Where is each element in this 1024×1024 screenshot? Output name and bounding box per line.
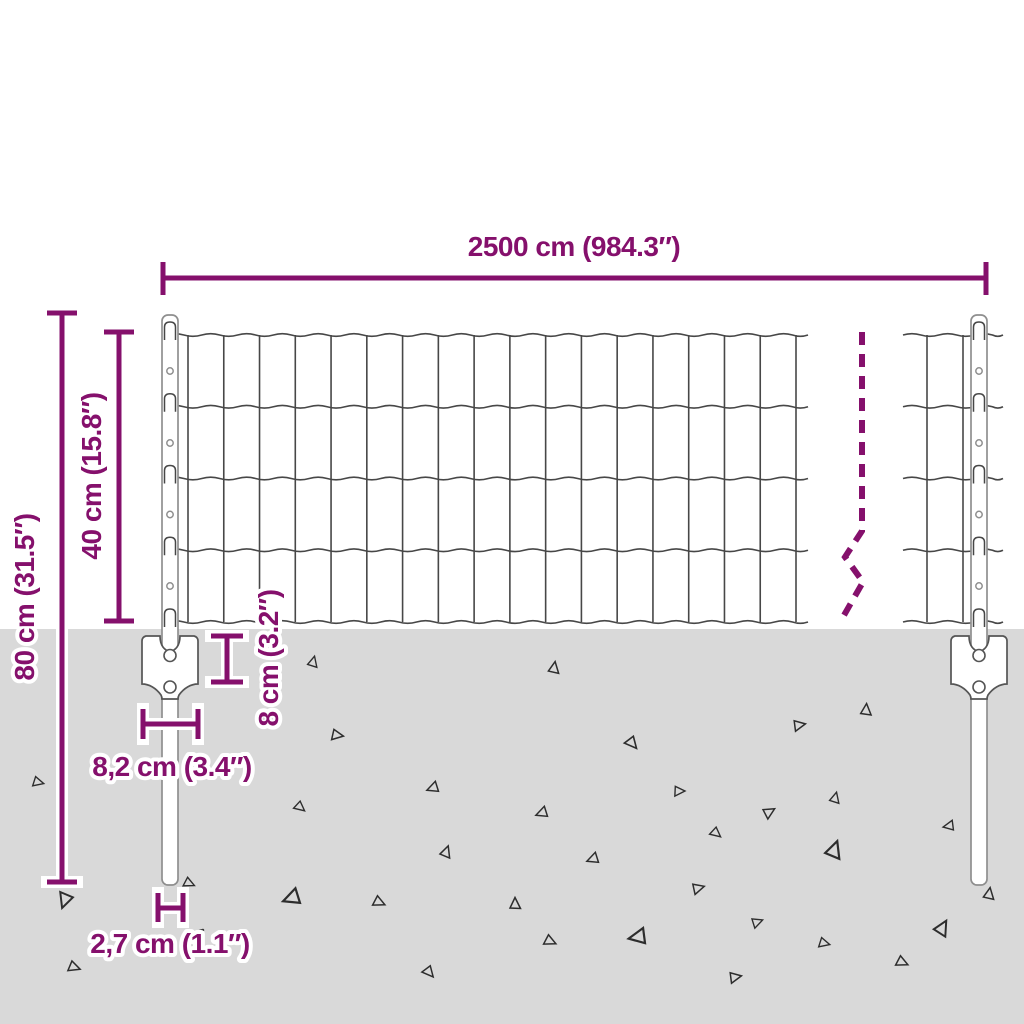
- wire-hook: [165, 537, 176, 555]
- wire-hook: [974, 609, 985, 627]
- post-hole: [167, 511, 173, 517]
- post-hole: [167, 440, 173, 446]
- dimension-total-width: 2500 cm (984.3″): [163, 231, 986, 295]
- anchor-plate-hole: [164, 681, 176, 693]
- dimension-label-mesh-height: 40 cm (15.8″): [76, 392, 107, 559]
- fence-mesh: [166, 334, 1003, 624]
- dimension-label-post-diameter: 2,7 cm (1.1″): [90, 928, 249, 959]
- horizontal-wire: [166, 477, 808, 480]
- horizontal-wire: [166, 405, 808, 408]
- post-hole: [976, 440, 982, 446]
- horizontal-wire: [903, 549, 1003, 552]
- break-line: [843, 332, 863, 617]
- wire-hook: [974, 537, 985, 555]
- horizontal-wire: [903, 621, 1003, 624]
- wire-hook: [974, 466, 985, 484]
- anchor-plate-hole: [973, 681, 985, 693]
- dimension-mesh-height: 40 cm (15.8″): [76, 332, 134, 621]
- anchor-plate-hole: [973, 650, 985, 662]
- post-hole: [976, 583, 982, 589]
- post-hole: [167, 583, 173, 589]
- fence-dimension-diagram: 2500 cm (984.3″) 80 cm (31.5″) 40 cm (15…: [0, 0, 1024, 1024]
- horizontal-wire: [166, 334, 808, 337]
- dimension-line-mesh-height: [104, 332, 134, 621]
- post-hole: [167, 368, 173, 374]
- dimension-label-anchor-plate-width: 8,2 cm (3.4″): [92, 751, 251, 782]
- wire-hook: [165, 466, 176, 484]
- wire-hook: [165, 322, 176, 340]
- horizontal-wire: [903, 477, 1003, 480]
- horizontal-wire: [903, 334, 1003, 337]
- dimension-label-total-width: 2500 cm (984.3″): [468, 231, 680, 262]
- horizontal-wire: [903, 405, 1003, 408]
- diagram-svg: 2500 cm (984.3″) 80 cm (31.5″) 40 cm (15…: [0, 0, 1024, 1024]
- dimension-label-post-height: 80 cm (31.5″): [9, 513, 40, 680]
- wire-hook: [974, 322, 985, 340]
- wire-hook: [974, 394, 985, 412]
- anchor-plate-hole: [164, 650, 176, 662]
- horizontal-wire: [166, 549, 808, 552]
- dimension-label-anchor-plate-height: 8 cm (3.2″): [253, 589, 284, 726]
- wire-hook: [165, 609, 176, 627]
- post-hole: [976, 368, 982, 374]
- dimension-line-total-width: [163, 262, 986, 295]
- post-hole: [976, 511, 982, 517]
- wire-hook: [165, 394, 176, 412]
